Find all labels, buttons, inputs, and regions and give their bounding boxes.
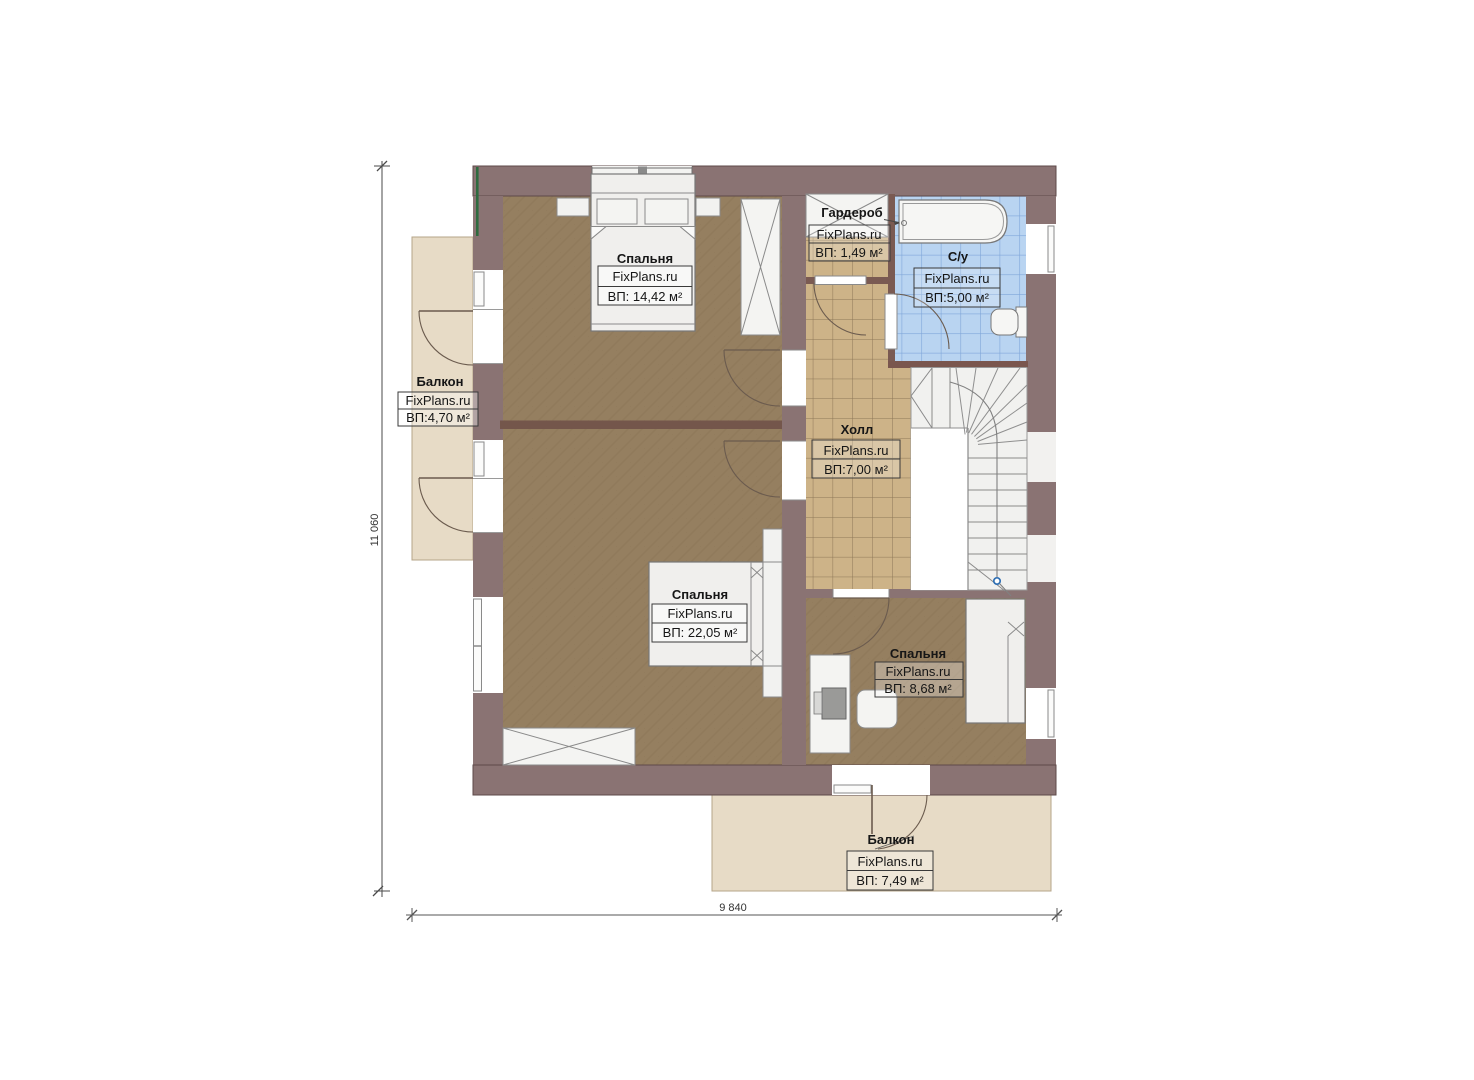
- svg-text:FixPlans.ru: FixPlans.ru: [405, 393, 470, 408]
- svg-text:Спальня: Спальня: [672, 587, 728, 602]
- svg-text:Спальня: Спальня: [617, 251, 673, 266]
- svg-text:С/у: С/у: [948, 249, 969, 264]
- svg-text:ВП: 7,49 м²: ВП: 7,49 м²: [856, 873, 924, 888]
- svg-text:ВП: 14,42 м²: ВП: 14,42 м²: [608, 289, 683, 304]
- svg-text:ВП:5,00 м²: ВП:5,00 м²: [925, 290, 989, 305]
- svg-text:Балкон: Балкон: [417, 374, 464, 389]
- svg-text:ВП: 22,05 м²: ВП: 22,05 м²: [663, 625, 738, 640]
- svg-text:9 840: 9 840: [719, 902, 747, 914]
- svg-text:Гардероб: Гардероб: [821, 205, 882, 220]
- svg-text:ВП:7,00 м²: ВП:7,00 м²: [824, 462, 888, 477]
- svg-text:FixPlans.ru: FixPlans.ru: [816, 227, 881, 242]
- svg-text:ВП: 8,68 м²: ВП: 8,68 м²: [884, 681, 952, 696]
- svg-text:Холл: Холл: [841, 422, 874, 437]
- svg-text:FixPlans.ru: FixPlans.ru: [885, 664, 950, 679]
- svg-text:Балкон: Балкон: [868, 832, 915, 847]
- svg-text:FixPlans.ru: FixPlans.ru: [612, 269, 677, 284]
- svg-text:ВП:4,70 м²: ВП:4,70 м²: [406, 410, 470, 425]
- svg-text:FixPlans.ru: FixPlans.ru: [667, 606, 732, 621]
- svg-text:ВП: 1,49 м²: ВП: 1,49 м²: [815, 245, 883, 260]
- svg-text:FixPlans.ru: FixPlans.ru: [924, 271, 989, 286]
- svg-text:FixPlans.ru: FixPlans.ru: [823, 443, 888, 458]
- svg-text:11 060: 11 060: [369, 514, 381, 547]
- svg-text:FixPlans.ru: FixPlans.ru: [857, 854, 922, 869]
- svg-text:Спальня: Спальня: [890, 646, 946, 661]
